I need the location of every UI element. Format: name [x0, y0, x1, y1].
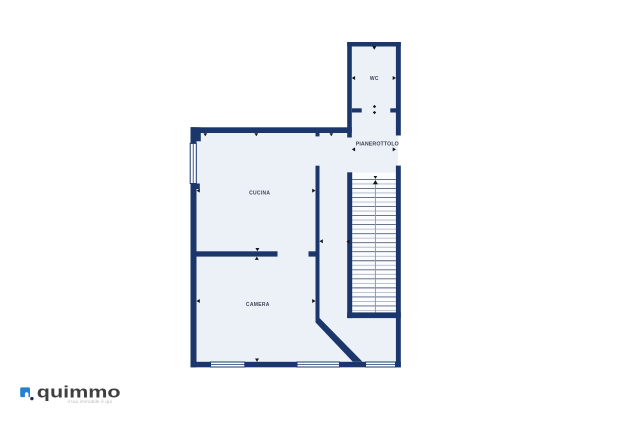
svg-text:CUCINA: CUCINA — [249, 191, 270, 197]
svg-text:PIANEROTTOLO: PIANEROTTOLO — [356, 141, 399, 147]
svg-text:CAMERA: CAMERA — [246, 302, 270, 308]
svg-text:il tuo immobile è qui: il tuo immobile è qui — [68, 399, 113, 405]
svg-text:WC: WC — [370, 76, 379, 82]
svg-text:quimmo: quimmo — [37, 384, 121, 402]
